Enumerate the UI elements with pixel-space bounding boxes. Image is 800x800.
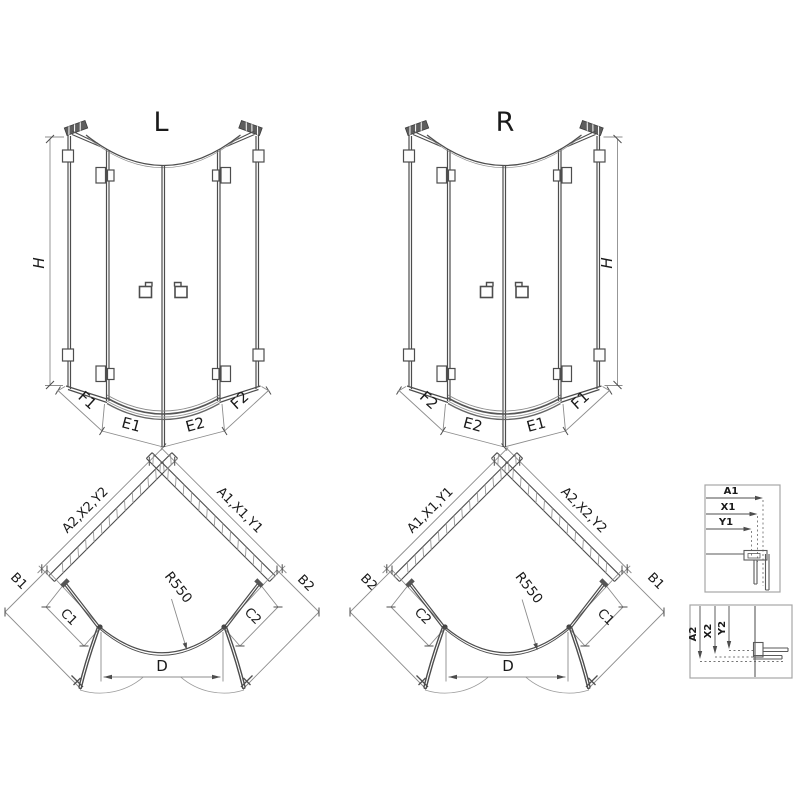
left-plan-radius-leader bbox=[172, 599, 187, 650]
left-plan-radius-label: R550 bbox=[161, 569, 195, 607]
a2-arrow-icon bbox=[698, 651, 702, 659]
left-elevation-e2-label: E2 bbox=[184, 414, 207, 436]
detail-y1-label: Y1 bbox=[718, 517, 733, 528]
left-plan-outer-right-label: B2 bbox=[294, 572, 317, 595]
left-elevation-view: L H F1 E1 E2 F2 bbox=[30, 107, 271, 451]
right-plan-radius-label: R550 bbox=[512, 569, 546, 607]
left-plan-view: A2,X2,Y2 A1,X1,Y1 B1 B2 C1 C2 R550 D bbox=[5, 447, 319, 693]
detail-box-a2: A2 X2 Y2 bbox=[688, 605, 792, 678]
y1-arrow-icon bbox=[744, 527, 752, 531]
right-elevation-e1-label: E1 bbox=[525, 414, 548, 436]
detail-x1-label: X1 bbox=[721, 502, 736, 513]
left-plan-entry-label: D bbox=[156, 657, 168, 675]
left-plan-wall-left-label: A2,X2,Y2 bbox=[59, 484, 111, 536]
right-plan-radius-leader bbox=[522, 600, 537, 651]
left-plan-outer-left-label: B1 bbox=[7, 570, 30, 593]
right-elevation-title: R bbox=[496, 107, 515, 138]
left-elevation-title: L bbox=[153, 107, 168, 138]
detail-y2-label: Y2 bbox=[717, 621, 728, 636]
x2-arrow-icon bbox=[713, 646, 717, 654]
right-plan-wall-right-label: A2,X2,Y2 bbox=[557, 484, 609, 536]
x1-arrow-icon bbox=[750, 512, 758, 516]
y2-arrow-icon bbox=[727, 641, 731, 649]
right-elevation-view: R H F2 E2 E1 F1 bbox=[397, 107, 623, 451]
right-plan-outer-left-label: B2 bbox=[357, 571, 380, 594]
left-plan-wall-right-label: A1,X1,Y1 bbox=[213, 484, 265, 536]
detail-box-a1: A1 X1 Y1 bbox=[705, 485, 780, 592]
left-elevation-height-label: H bbox=[30, 257, 48, 268]
detail-a1-label: A1 bbox=[724, 486, 739, 497]
a1-arrow-icon bbox=[755, 496, 763, 500]
right-plan-entry-label: D bbox=[502, 657, 514, 675]
detail-a2-label: A2 bbox=[688, 627, 699, 642]
right-plan-wall-left-label: A1,X1,Y1 bbox=[404, 484, 456, 536]
right-elevation-e2-label: E2 bbox=[461, 414, 484, 436]
right-plan-outer-right-label: B1 bbox=[644, 570, 667, 593]
right-plan-view: A1,X1,Y1 A2,X2,Y2 B2 B1 C2 C1 R550 D bbox=[350, 447, 667, 693]
shower-enclosure-technical-drawing: L H F1 E1 E2 F2 R H F2 E2 E1 F1 A2,X2,Y2… bbox=[0, 0, 800, 800]
right-plan-panel-right-label: C1 bbox=[594, 606, 617, 629]
left-elevation-e1-label: E1 bbox=[120, 414, 143, 436]
left-plan-panel-left-label: C1 bbox=[57, 606, 80, 629]
right-elevation-height-label: H bbox=[598, 257, 616, 268]
detail-x2-label: X2 bbox=[703, 624, 714, 639]
